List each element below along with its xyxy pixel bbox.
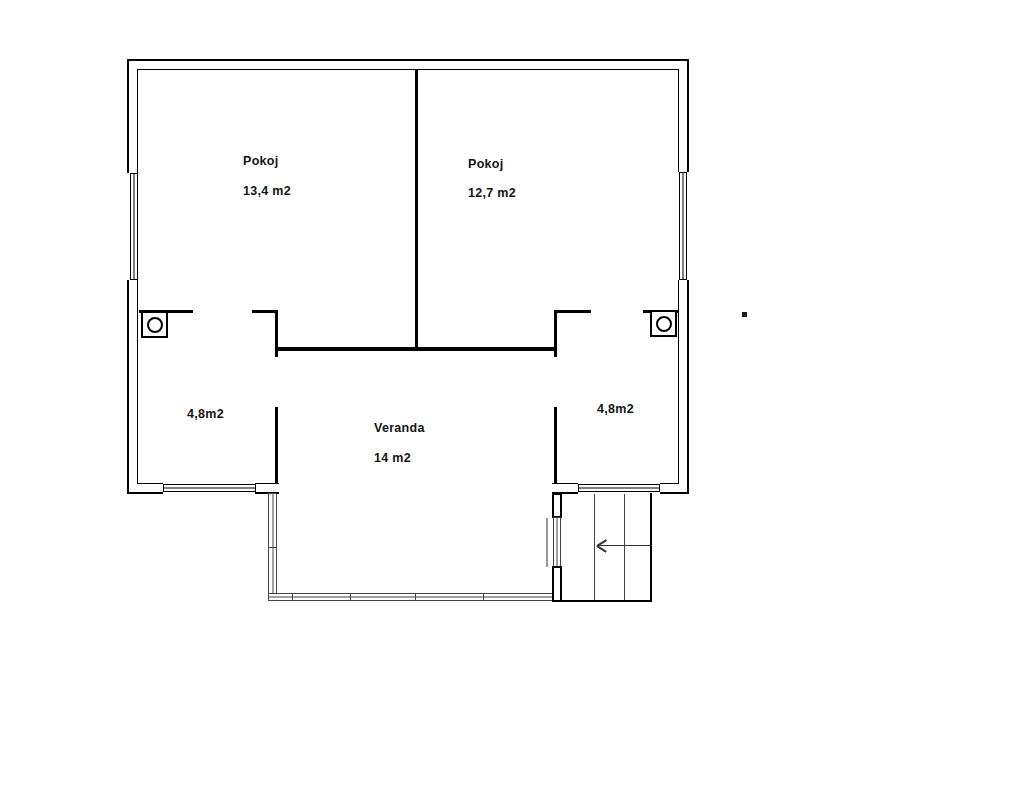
veranda-area: 14 m2 <box>374 451 411 465</box>
wall-veranda-north <box>276 347 557 351</box>
stair-edge-right <box>650 493 652 602</box>
wall-hall-left-east-upper <box>275 310 278 357</box>
wall-room-right-south-a <box>554 310 591 313</box>
veranda-name: Veranda <box>374 421 425 435</box>
veranda-wall-east-lower <box>552 566 562 602</box>
artifact-dot <box>742 312 747 317</box>
stair-step-line <box>594 494 595 600</box>
veranda-door-leaf <box>546 518 548 567</box>
hall-right-area: 4,8m2 <box>597 402 634 416</box>
window-divider <box>292 593 293 601</box>
veranda-wall-east-upper <box>552 493 562 518</box>
window-divider <box>268 547 277 548</box>
window-right-wall <box>679 172 687 280</box>
room-left-name: Pokoj <box>243 154 279 168</box>
room-left-area: 13,4 m2 <box>243 184 291 198</box>
window-bottom-right <box>578 484 660 492</box>
room-right-name: Pokoj <box>468 157 504 171</box>
room-right-area: 12,7 m2 <box>468 186 516 200</box>
wall-between-rooms <box>415 69 418 351</box>
window-divider <box>350 593 351 601</box>
hall-left-area: 4,8m2 <box>187 407 224 421</box>
stair-step-line <box>624 494 625 600</box>
window-divider <box>415 593 416 601</box>
wall-hall-right-west-upper <box>554 310 557 357</box>
floor-plan: Pokoj 13,4 m2 Pokoj 12,7 m2 4,8m2 4,8m2 … <box>0 0 1024 791</box>
wall-hall-right-west-lower <box>554 407 557 484</box>
veranda-door-east <box>553 517 561 568</box>
left-arrow-head-lower <box>597 545 607 552</box>
window-divider <box>483 593 484 601</box>
stove-right <box>650 310 677 337</box>
stove-circle-icon <box>656 316 672 332</box>
stair-edge-bottom <box>562 600 652 602</box>
stove-left <box>141 311 168 338</box>
wall-opening-veranda <box>279 479 552 496</box>
stove-circle-icon <box>147 317 163 333</box>
window-bottom-left <box>163 484 256 492</box>
window-left-wall <box>130 173 138 280</box>
left-arrow-icon <box>597 545 652 546</box>
wall-hall-left-east-lower <box>275 407 278 484</box>
